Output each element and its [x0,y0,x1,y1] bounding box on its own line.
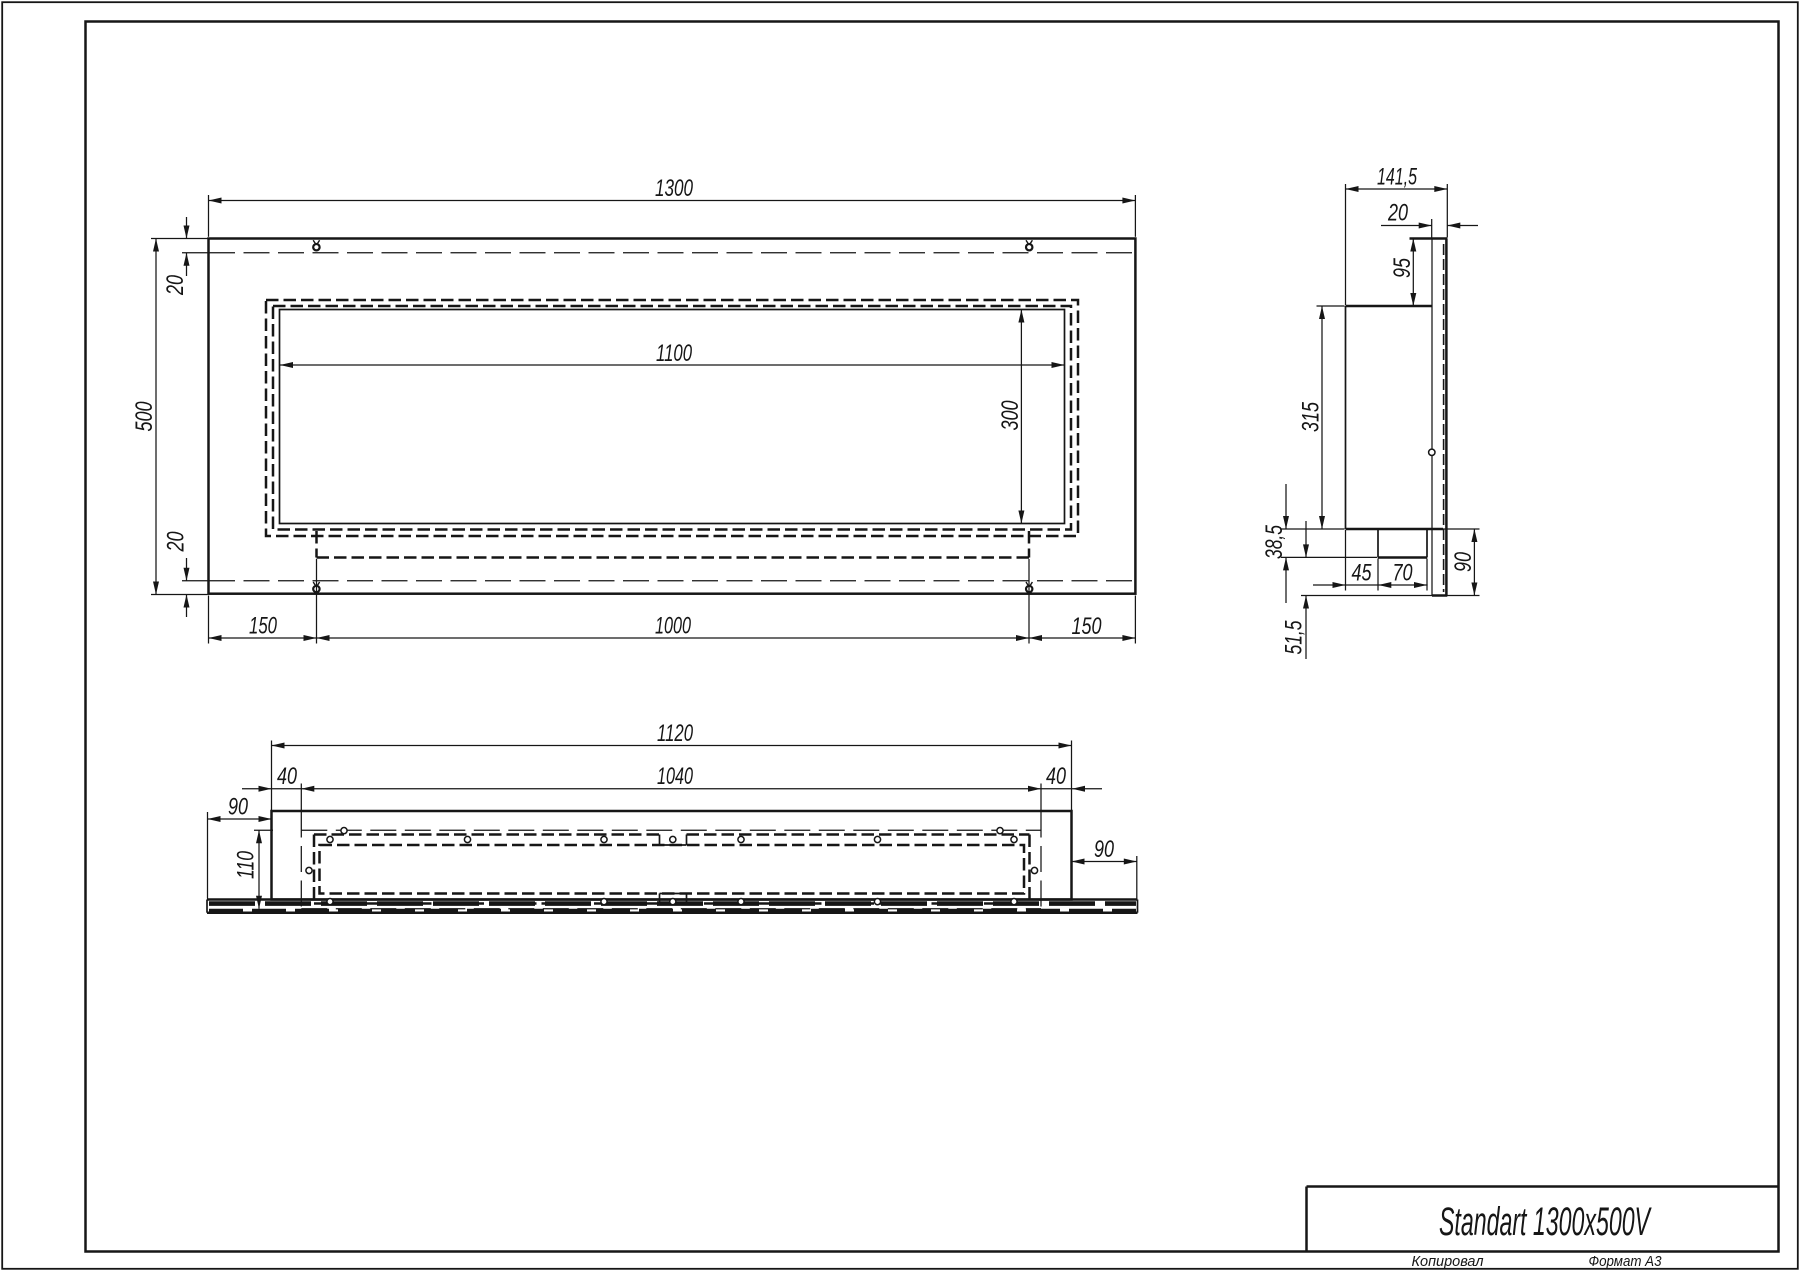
svg-text:Standart 1300x500V: Standart 1300x500V [1439,1200,1652,1244]
svg-text:150: 150 [1072,613,1102,640]
svg-text:95: 95 [1389,258,1416,278]
svg-text:Формат А3: Формат А3 [1589,1253,1663,1270]
svg-text:1100: 1100 [656,340,692,367]
svg-text:51,5: 51,5 [1281,620,1308,654]
svg-text:40: 40 [1046,763,1066,790]
svg-text:300: 300 [997,400,1024,430]
svg-text:38,5: 38,5 [1261,525,1288,559]
svg-text:90: 90 [228,794,248,821]
svg-text:315: 315 [1298,402,1325,432]
svg-text:110: 110 [233,851,260,879]
svg-text:45: 45 [1352,560,1372,587]
svg-text:20: 20 [163,531,190,552]
svg-text:70: 70 [1393,560,1413,587]
svg-text:90: 90 [1094,836,1114,863]
svg-text:1300: 1300 [655,175,693,202]
svg-text:150: 150 [249,613,277,640]
svg-text:20: 20 [1387,200,1408,227]
svg-text:141,5: 141,5 [1377,164,1417,191]
svg-text:20: 20 [162,275,189,296]
svg-text:500: 500 [131,401,158,431]
svg-text:40: 40 [277,763,297,790]
svg-text:Копировал: Копировал [1412,1253,1485,1270]
svg-text:1000: 1000 [655,613,691,640]
svg-text:1040: 1040 [657,763,693,790]
svg-text:1120: 1120 [657,720,693,747]
svg-text:90: 90 [1450,552,1477,572]
